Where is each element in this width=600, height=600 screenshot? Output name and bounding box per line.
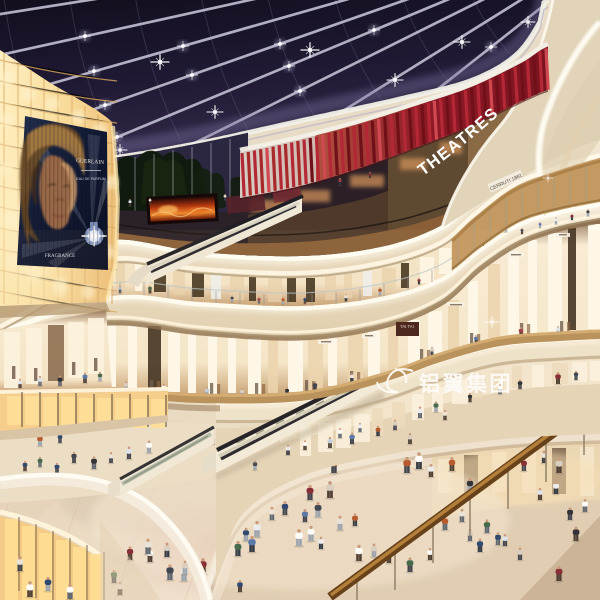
svg-text:EAU DE PARFUM: EAU DE PARFUM — [76, 177, 105, 181]
